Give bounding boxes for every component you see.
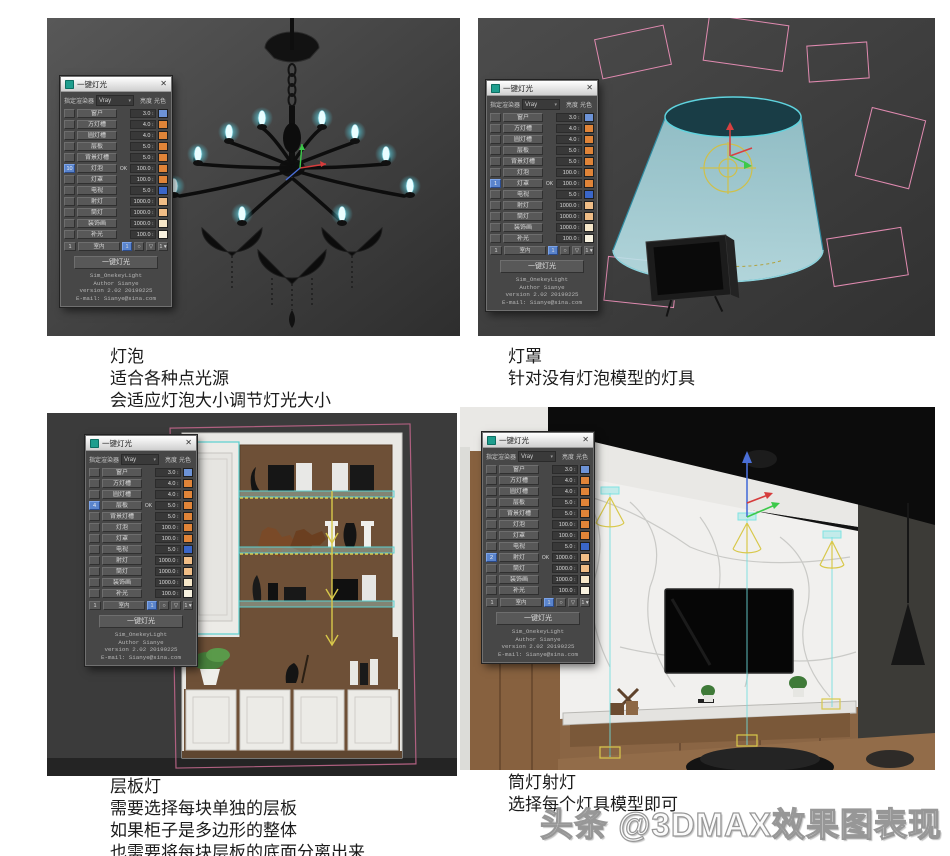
light-color-swatch[interactable]: [580, 553, 590, 562]
light-color-swatch[interactable]: [158, 208, 168, 217]
brightness-value[interactable]: 100.0↕: [130, 164, 156, 173]
light-color-swatch[interactable]: [584, 201, 594, 210]
side-wall: [856, 497, 935, 770]
brightness-value[interactable]: 5.0↕: [155, 512, 181, 521]
renderer-label: 指定渲染器: [490, 100, 520, 109]
light-type-button[interactable]: 灯泡: [77, 164, 117, 173]
renderer-dropdown[interactable]: Vray ▾: [522, 99, 560, 110]
bottom-control-button[interactable]: 1 ▾: [584, 246, 594, 255]
spinner-icon[interactable]: ↕: [574, 478, 577, 484]
brightness-value[interactable]: 5.0↕: [552, 542, 578, 551]
brightness-value[interactable]: 100.0↕: [552, 586, 578, 595]
light-type-button[interactable]: 圆灯槽: [499, 487, 539, 496]
bottom-control-button[interactable]: 1 ▾: [580, 598, 590, 607]
spinner-icon[interactable]: ↕: [574, 566, 577, 572]
light-type-button[interactable]: 补光: [102, 589, 142, 598]
light-type-button[interactable]: 灯罩: [499, 531, 539, 540]
brightness-value[interactable]: 5.0↕: [155, 501, 181, 510]
brightness-value[interactable]: 5.0↕: [552, 509, 578, 518]
light-count-button[interactable]: [64, 142, 75, 151]
light-type-button[interactable]: 筒灯: [499, 564, 539, 573]
light-type-button[interactable]: 电视: [499, 542, 539, 551]
light-type-row: 层板OK5.0↕: [487, 145, 597, 156]
spinner-icon[interactable]: ↕: [152, 133, 155, 139]
brightness-value[interactable]: 100.0↕: [556, 234, 582, 243]
brightness-value[interactable]: 1000.0↕: [130, 219, 156, 228]
spinner-icon[interactable]: ↕: [177, 525, 180, 531]
spinner-icon[interactable]: ↕: [177, 503, 180, 509]
light-color-swatch[interactable]: [580, 586, 590, 595]
light-color-swatch[interactable]: [183, 468, 193, 477]
light-type-button[interactable]: 灯罩: [102, 534, 142, 543]
brightness-value[interactable]: 1000.0↕: [552, 564, 578, 573]
light-color-swatch[interactable]: [580, 509, 590, 518]
light-color-swatch[interactable]: [580, 487, 590, 496]
light-color-swatch[interactable]: [580, 564, 590, 573]
light-count-button[interactable]: 4: [89, 501, 100, 510]
light-count-button[interactable]: [89, 556, 100, 565]
light-type-button[interactable]: 灯泡: [499, 520, 539, 529]
spinner-icon[interactable]: ↕: [574, 467, 577, 473]
brightness-value[interactable]: 100.0↕: [155, 589, 181, 598]
spinner-icon[interactable]: ↕: [177, 536, 180, 542]
one-key-light-button[interactable]: 一键灯光: [99, 615, 183, 628]
brightness-value[interactable]: 1000.0↕: [552, 553, 578, 562]
light-color-swatch[interactable]: [158, 153, 168, 162]
brightness-value[interactable]: 100.0↕: [155, 523, 181, 532]
light-color-swatch[interactable]: [584, 157, 594, 166]
spinner-icon[interactable]: ↕: [578, 115, 581, 121]
brightness-value[interactable]: 100.0↕: [556, 179, 582, 188]
bottom-control-button[interactable]: 1 ▾: [183, 601, 193, 610]
light-color-swatch[interactable]: [158, 120, 168, 129]
light-color-swatch[interactable]: [183, 545, 193, 554]
spinner-icon[interactable]: ↕: [152, 177, 155, 183]
light-color-swatch[interactable]: [580, 465, 590, 474]
light-color-swatch[interactable]: [158, 186, 168, 195]
spinner-icon[interactable]: ↕: [152, 166, 155, 172]
spinner-icon[interactable]: ↕: [152, 210, 155, 216]
spinner-icon[interactable]: ↕: [177, 569, 180, 575]
brightness-value[interactable]: 100.0↕: [130, 230, 156, 239]
bottom-control-button[interactable]: 室内: [103, 601, 145, 610]
spinner-icon[interactable]: ↕: [177, 558, 180, 564]
light-type-button[interactable]: 灯罩: [503, 179, 543, 188]
brightness-value[interactable]: 3.0↕: [130, 109, 156, 118]
light-type-button[interactable]: 背景灯槽: [77, 153, 117, 162]
brightness-value[interactable]: 4.0↕: [130, 131, 156, 140]
brightness-value[interactable]: 5.0↕: [130, 142, 156, 151]
light-count-button[interactable]: [89, 479, 100, 488]
glass-shelf[interactable]: [238, 547, 394, 554]
light-count-button[interactable]: [486, 476, 497, 485]
bottom-control-button[interactable]: 1: [486, 598, 498, 607]
cabinet-model[interactable]: [182, 433, 402, 758]
light-count-button[interactable]: [89, 578, 100, 587]
spinner-icon[interactable]: ↕: [578, 159, 581, 165]
panel-title-bar[interactable]: 一键灯光 ✕: [487, 81, 597, 96]
brightness-value[interactable]: 4.0↕: [552, 476, 578, 485]
light-type-button[interactable]: 灯泡: [503, 168, 543, 177]
light-count-button[interactable]: [89, 523, 100, 532]
light-type-button[interactable]: 装饰画: [499, 575, 539, 584]
spinner-icon[interactable]: ↕: [177, 591, 180, 597]
spinner-icon[interactable]: ↕: [574, 555, 577, 561]
bottom-control-button[interactable]: ▽: [146, 242, 156, 251]
bottom-control-button[interactable]: ○: [134, 242, 144, 251]
light-type-button[interactable]: 窗户: [503, 113, 543, 122]
bottom-control-button[interactable]: 1: [490, 246, 502, 255]
spinner-icon[interactable]: ↕: [574, 577, 577, 583]
light-color-swatch[interactable]: [584, 212, 594, 221]
spinner-icon[interactable]: ↕: [152, 188, 155, 194]
light-color-swatch[interactable]: [183, 479, 193, 488]
light-color-swatch[interactable]: [183, 512, 193, 521]
spinner-icon[interactable]: ↕: [152, 122, 155, 128]
light-count-button[interactable]: [486, 487, 497, 496]
brightness-value[interactable]: 5.0↕: [556, 190, 582, 199]
light-count-button[interactable]: [89, 589, 100, 598]
light-count-button[interactable]: [486, 520, 497, 529]
light-color-swatch[interactable]: [158, 131, 168, 140]
spinner-icon[interactable]: ↕: [152, 111, 155, 117]
light-type-button[interactable]: 背景灯槽: [102, 512, 142, 521]
light-count-button[interactable]: [490, 168, 501, 177]
light-color-swatch[interactable]: [584, 146, 594, 155]
light-count-button[interactable]: [64, 208, 75, 217]
brightness-value[interactable]: 1000.0↕: [155, 567, 181, 576]
brightness-value[interactable]: 1000.0↕: [556, 212, 582, 221]
light-type-button[interactable]: 补光: [499, 586, 539, 595]
renderer-dropdown[interactable]: Vray ▾: [121, 454, 159, 465]
footer-line: Author Sianye: [483, 636, 593, 644]
light-count-button[interactable]: [486, 564, 497, 573]
brightness-value[interactable]: 4.0↕: [556, 135, 582, 144]
light-color-swatch[interactable]: [584, 234, 594, 243]
spinner-icon[interactable]: ↕: [574, 489, 577, 495]
light-type-button[interactable]: 窗户: [499, 465, 539, 474]
light-type-button[interactable]: 筒灯: [77, 208, 117, 217]
bottom-control-button[interactable]: 1: [122, 242, 132, 251]
spinner-icon[interactable]: ↕: [578, 137, 581, 143]
light-count-button[interactable]: [89, 545, 100, 554]
light-count-button[interactable]: [486, 575, 497, 584]
light-type-button[interactable]: 背景灯槽: [499, 509, 539, 518]
brightness-value[interactable]: 1000.0↕: [552, 575, 578, 584]
spinner-icon[interactable]: ↕: [152, 232, 155, 238]
light-type-button[interactable]: 装饰画: [102, 578, 142, 587]
light-type-button[interactable]: 电视: [77, 186, 117, 195]
light-count-button[interactable]: [64, 219, 75, 228]
spinner-icon[interactable]: ↕: [578, 225, 581, 231]
brightness-value[interactable]: 5.0↕: [155, 545, 181, 554]
brightness-value[interactable]: 100.0↕: [556, 168, 582, 177]
bottom-control-button[interactable]: 室内: [504, 246, 546, 255]
spinner-icon[interactable]: ↕: [574, 544, 577, 550]
bottom-control-button[interactable]: 室内: [500, 598, 542, 607]
light-type-button[interactable]: 层板: [77, 142, 117, 151]
spinner-icon[interactable]: ↕: [177, 470, 180, 476]
spinner-icon[interactable]: ↕: [578, 214, 581, 220]
panel-title-bar[interactable]: 一键灯光 ✕: [61, 77, 171, 92]
brightness-value[interactable]: 5.0↕: [130, 153, 156, 162]
light-color-swatch[interactable]: [158, 175, 168, 184]
light-color-swatch[interactable]: [584, 113, 594, 122]
brightness-value[interactable]: 5.0↕: [556, 157, 582, 166]
light-type-button[interactable]: 灯泡: [102, 523, 142, 532]
viewport-downlight[interactable]: 一键灯光 ✕ 指定渲染器 Vray ▾ 亮度 光色 窗户OK3.0↕方灯槽OK4…: [460, 407, 935, 770]
chain: [290, 18, 294, 50]
brightness-value[interactable]: 4.0↕: [556, 124, 582, 133]
light-count-button[interactable]: [64, 197, 75, 206]
spinner-icon[interactable]: ↕: [574, 588, 577, 594]
one-key-light-button[interactable]: 一键灯光: [496, 612, 580, 625]
light-type-button[interactable]: 圆灯槽: [102, 490, 142, 499]
spinner-icon[interactable]: ↕: [177, 547, 180, 553]
light-type-button[interactable]: 背景灯槽: [503, 157, 543, 166]
brightness-value[interactable]: 4.0↕: [130, 120, 156, 129]
spinner-icon[interactable]: ↕: [177, 492, 180, 498]
light-count-button[interactable]: [89, 534, 100, 543]
light-color-swatch[interactable]: [584, 124, 594, 133]
light-color-swatch[interactable]: [183, 490, 193, 499]
light-type-row: 窗户OK3.0↕: [483, 464, 593, 475]
light-color-swatch[interactable]: [183, 501, 193, 510]
light-count-button[interactable]: [486, 509, 497, 518]
light-count-button[interactable]: [486, 498, 497, 507]
spinner-icon[interactable]: ↕: [152, 155, 155, 161]
bottom-control-button[interactable]: 1: [544, 598, 554, 607]
spinner-icon[interactable]: ↕: [152, 221, 155, 227]
light-color-swatch[interactable]: [158, 197, 168, 206]
brightness-value[interactable]: 5.0↕: [552, 498, 578, 507]
glass-shelf[interactable]: [238, 491, 394, 498]
light-type-button[interactable]: 电视: [102, 545, 142, 554]
light-color-swatch[interactable]: [183, 523, 193, 532]
spinner-icon[interactable]: ↕: [578, 148, 581, 154]
light-color-swatch[interactable]: [580, 476, 590, 485]
viewport-lampshade[interactable]: 一键灯光 ✕ 指定渲染器 Vray ▾ 亮度 光色 窗户OK3.0↕方灯槽OK4…: [478, 18, 935, 336]
brightness-value[interactable]: 1000.0↕: [155, 556, 181, 565]
light-type-button[interactable]: 筒灯: [503, 212, 543, 221]
light-type-button[interactable]: 层板: [499, 498, 539, 507]
light-color-swatch[interactable]: [584, 179, 594, 188]
bottom-control-button[interactable]: ▽: [171, 601, 181, 610]
brightness-value[interactable]: 4.0↕: [155, 479, 181, 488]
light-count-button[interactable]: [64, 175, 75, 184]
light-count-button[interactable]: [64, 120, 75, 129]
light-color-swatch[interactable]: [183, 578, 193, 587]
brightness-value[interactable]: 5.0↕: [130, 186, 156, 195]
light-type-button[interactable]: 筒灯: [102, 567, 142, 576]
spinner-icon[interactable]: ↕: [578, 126, 581, 132]
renderer-label: 指定渲染器: [89, 455, 119, 464]
light-count-button[interactable]: [490, 157, 501, 166]
light-type-button[interactable]: 射灯: [77, 197, 117, 206]
light-type-button[interactable]: 补光: [77, 230, 117, 239]
light-count-button[interactable]: 1: [490, 179, 501, 188]
spinner-icon[interactable]: ↕: [574, 500, 577, 506]
one-key-light-button[interactable]: 一键灯光: [74, 256, 158, 269]
panel-title-bar[interactable]: 一键灯光 ✕: [483, 433, 593, 448]
light-color-swatch[interactable]: [584, 190, 594, 199]
spinner-icon[interactable]: ↕: [574, 511, 577, 517]
light-type-button[interactable]: 补光: [503, 234, 543, 243]
light-count-button[interactable]: [64, 230, 75, 239]
light-type-button[interactable]: 装饰画: [77, 219, 117, 228]
brightness-value[interactable]: 100.0↕: [552, 531, 578, 540]
one-key-light-button[interactable]: 一键灯光: [500, 260, 584, 273]
brightness-value[interactable]: 5.0↕: [556, 146, 582, 155]
light-type-button[interactable]: 圆灯槽: [503, 135, 543, 144]
light-count-button[interactable]: [486, 531, 497, 540]
light-count-button[interactable]: [490, 124, 501, 133]
spinner-icon[interactable]: ↕: [574, 533, 577, 539]
bottom-control-button[interactable]: 1: [64, 242, 76, 251]
brightness-value[interactable]: 1000.0↕: [155, 578, 181, 587]
light-count-button[interactable]: [490, 234, 501, 243]
light-type-button[interactable]: 方灯槽: [503, 124, 543, 133]
close-icon[interactable]: ✕: [185, 438, 192, 448]
light-type-button[interactable]: 射灯: [499, 553, 539, 562]
light-color-swatch[interactable]: [580, 575, 590, 584]
light-type-row: 筒灯OK1000.0↕: [86, 566, 196, 577]
light-color-swatch[interactable]: [584, 135, 594, 144]
bottom-control-button[interactable]: ○: [159, 601, 169, 610]
renderer-row: 指定渲染器 Vray ▾ 亮度 光色: [487, 96, 597, 112]
light-count-button[interactable]: [486, 465, 497, 474]
spinner-icon[interactable]: ↕: [578, 170, 581, 176]
color-column-label: 光色: [580, 100, 592, 109]
light-type-button[interactable]: 射灯: [102, 556, 142, 565]
light-color-swatch[interactable]: [183, 589, 193, 598]
close-icon[interactable]: ✕: [582, 435, 589, 445]
light-count-button[interactable]: [89, 490, 100, 499]
bottom-control-button[interactable]: 1: [548, 246, 558, 255]
close-icon[interactable]: ✕: [586, 83, 593, 93]
brightness-value[interactable]: 100.0↕: [552, 520, 578, 529]
brightness-value[interactable]: 1000.0↕: [556, 201, 582, 210]
light-count-button[interactable]: [486, 542, 497, 551]
spinner-icon[interactable]: ↕: [578, 181, 581, 187]
viewport-shelf[interactable]: 一键灯光 ✕ 指定渲染器 Vray ▾ 亮度 光色 窗户OK3.0↕方灯槽OK4…: [47, 413, 457, 776]
brightness-value[interactable]: 3.0↕: [552, 465, 578, 474]
brightness-value[interactable]: 3.0↕: [556, 113, 582, 122]
footer-line: Sim_OnekeyLight: [61, 272, 171, 280]
light-type-button[interactable]: 层板: [102, 501, 142, 510]
light-color-swatch[interactable]: [580, 498, 590, 507]
light-type-button[interactable]: 灯罩: [77, 175, 117, 184]
light-count-button[interactable]: 10: [64, 164, 75, 173]
light-count-button[interactable]: [490, 201, 501, 210]
brightness-value[interactable]: 4.0↕: [155, 490, 181, 499]
light-color-swatch[interactable]: [584, 168, 594, 177]
bottom-control-button[interactable]: 1 ▾: [158, 242, 168, 251]
renderer-dropdown[interactable]: Vray ▾: [96, 95, 134, 106]
spinner-icon[interactable]: ↕: [578, 203, 581, 209]
spinner-icon[interactable]: ↕: [177, 481, 180, 487]
plugin-icon: [90, 439, 99, 448]
close-icon[interactable]: ✕: [160, 79, 167, 89]
viewport-bulb[interactable]: 一键灯光 ✕ 指定渲染器 Vray ▾ 亮度 光色 窗户OK3.0↕方灯槽OK4…: [47, 18, 460, 336]
light-color-swatch[interactable]: [158, 219, 168, 228]
light-count-button[interactable]: [490, 212, 501, 221]
light-count-button[interactable]: [64, 109, 75, 118]
bottom-control-button[interactable]: 1: [147, 601, 157, 610]
spinner-icon[interactable]: ↕: [578, 192, 581, 198]
light-count-button[interactable]: [89, 512, 100, 521]
light-count-button[interactable]: [64, 131, 75, 140]
light-count-button[interactable]: [490, 223, 501, 232]
light-count-button[interactable]: [490, 146, 501, 155]
light-color-swatch[interactable]: [158, 164, 168, 173]
bottom-control-button[interactable]: 1: [89, 601, 101, 610]
brightness-value[interactable]: 4.0↕: [552, 487, 578, 496]
spinner-icon[interactable]: ↕: [177, 514, 180, 520]
light-color-swatch[interactable]: [580, 520, 590, 529]
spinner-icon[interactable]: ↕: [152, 199, 155, 205]
light-count-button[interactable]: [490, 135, 501, 144]
bottom-control-button[interactable]: ○: [556, 598, 566, 607]
brightness-value[interactable]: 3.0↕: [155, 468, 181, 477]
light-type-button[interactable]: 窗户: [102, 468, 142, 477]
light-type-button[interactable]: 装饰画: [503, 223, 543, 232]
glass-shelf[interactable]: [238, 601, 394, 607]
spinner-icon[interactable]: ↕: [152, 144, 155, 150]
spinner-icon[interactable]: ↕: [177, 580, 180, 586]
light-type-button[interactable]: 射灯: [503, 201, 543, 210]
light-count-button[interactable]: [64, 153, 75, 162]
light-color-swatch[interactable]: [183, 534, 193, 543]
light-type-button[interactable]: 方灯槽: [499, 476, 539, 485]
light-count-button[interactable]: [89, 567, 100, 576]
light-count-button[interactable]: [89, 468, 100, 477]
light-count-button[interactable]: [490, 190, 501, 199]
renderer-dropdown[interactable]: Vray ▾: [518, 451, 556, 462]
panel-title-bar[interactable]: 一键灯光 ✕: [86, 436, 196, 451]
bottom-control-button[interactable]: ▽: [572, 246, 582, 255]
light-color-swatch[interactable]: [158, 109, 168, 118]
light-type-button[interactable]: 方灯槽: [102, 479, 142, 488]
light-color-swatch[interactable]: [158, 142, 168, 151]
brightness-value[interactable]: 1000.0↕: [556, 223, 582, 232]
light-count-button[interactable]: 2: [486, 553, 497, 562]
light-color-swatch[interactable]: [183, 556, 193, 565]
brightness-value[interactable]: 100.0↕: [155, 534, 181, 543]
light-type-button[interactable]: 层板: [503, 146, 543, 155]
light-color-swatch[interactable]: [580, 531, 590, 540]
light-type-button[interactable]: 窗户: [77, 109, 117, 118]
light-color-swatch[interactable]: [158, 230, 168, 239]
light-color-swatch[interactable]: [584, 223, 594, 232]
bottom-control-button[interactable]: ▽: [568, 598, 578, 607]
light-type-button[interactable]: 电视: [503, 190, 543, 199]
light-color-swatch[interactable]: [580, 542, 590, 551]
light-count-button[interactable]: [64, 186, 75, 195]
brightness-value[interactable]: 1000.0↕: [130, 197, 156, 206]
light-count-button[interactable]: [490, 113, 501, 122]
bottom-control-button[interactable]: ○: [560, 246, 570, 255]
light-type-button[interactable]: 圆灯槽: [77, 131, 117, 140]
light-count-button[interactable]: [486, 586, 497, 595]
light-type-button[interactable]: 方灯槽: [77, 120, 117, 129]
spinner-icon[interactable]: ↕: [578, 236, 581, 242]
brightness-value[interactable]: 1000.0↕: [130, 208, 156, 217]
light-color-swatch[interactable]: [183, 567, 193, 576]
brightness-value[interactable]: 100.0↕: [130, 175, 156, 184]
bottom-control-button[interactable]: 室内: [78, 242, 120, 251]
spinner-icon[interactable]: ↕: [574, 522, 577, 528]
